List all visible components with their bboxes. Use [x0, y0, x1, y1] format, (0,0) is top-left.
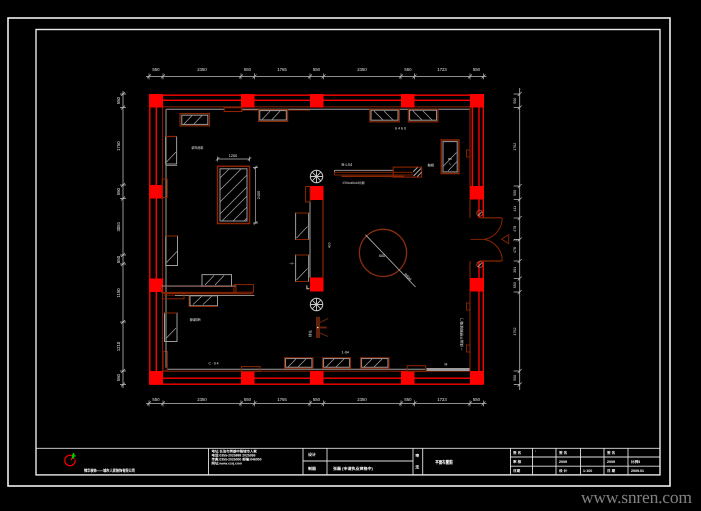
svg-text:签 名: 签 名	[558, 450, 568, 455]
svg-text:入口: 入口	[513, 238, 519, 242]
svg-text:550: 550	[473, 397, 481, 402]
svg-text:C-04: C-04	[209, 361, 219, 365]
svg-text:6460: 6460	[395, 127, 406, 131]
svg-text:1762: 1762	[513, 143, 517, 151]
svg-text:1723: 1723	[437, 397, 447, 402]
svg-text:2350: 2350	[197, 397, 207, 402]
svg-text:网址:www.csrj.com: 网址:www.csrj.com	[212, 462, 243, 466]
svg-text:2009: 2009	[559, 460, 567, 464]
svg-text:411: 411	[513, 206, 517, 212]
svg-text:1200: 1200	[229, 154, 237, 158]
svg-text:玻璃隔断: 玻璃隔断	[190, 318, 201, 322]
svg-text:550: 550	[313, 397, 321, 402]
svg-text:550: 550	[513, 190, 517, 196]
svg-text:550: 550	[404, 67, 412, 72]
svg-text:B-L04: B-L04	[342, 162, 353, 167]
svg-text:1150: 1150	[116, 288, 121, 298]
svg-text:比例$: 比例$	[631, 459, 640, 464]
svg-text:1765: 1765	[277, 397, 287, 402]
svg-text:1210: 1210	[116, 341, 121, 351]
svg-text:3081: 3081	[116, 221, 121, 231]
svg-text:2350: 2350	[197, 67, 207, 72]
svg-text:签 名: 签 名	[606, 450, 616, 455]
svg-text:550: 550	[473, 67, 481, 72]
svg-text:平面布置图: 平面布置图	[435, 459, 453, 466]
svg-text:绿化: 绿化	[309, 330, 313, 337]
svg-text:600: 600	[379, 254, 385, 258]
svg-text:1-04: 1-04	[342, 350, 350, 354]
svg-text:550: 550	[116, 374, 121, 382]
svg-text:2400: 2400	[257, 191, 261, 199]
svg-text:1723: 1723	[437, 67, 447, 72]
svg-text:2009.01: 2009.01	[631, 469, 644, 473]
svg-text:1765: 1765	[277, 67, 287, 72]
svg-text:478: 478	[513, 226, 517, 232]
svg-text:─ 成品不锈钢玻璃门: ─ 成品不锈钢玻璃门	[459, 318, 464, 352]
svg-text:鞋柜: 鞋柜	[428, 164, 435, 168]
svg-text:日期: 日期	[513, 468, 521, 473]
svg-text:550: 550	[313, 67, 321, 72]
svg-text:650: 650	[116, 255, 121, 263]
svg-text:⊣⊢: ⊣⊢	[289, 262, 295, 266]
svg-text:定: 定	[414, 465, 419, 470]
svg-text:550: 550	[116, 97, 121, 105]
svg-text:制图: 制图	[308, 466, 316, 471]
svg-text:2350: 2350	[357, 397, 367, 402]
svg-text:装饰品柜: 装饰品柜	[191, 146, 204, 150]
svg-text:设计: 设计	[308, 452, 316, 457]
svg-text:550: 550	[244, 397, 252, 402]
svg-text:550: 550	[244, 67, 252, 72]
svg-text:550: 550	[116, 188, 121, 196]
svg-text:550: 550	[513, 98, 517, 104]
svg-text:审 核: 审 核	[513, 459, 522, 464]
svg-text:审: 审	[415, 453, 419, 458]
svg-text:日 期: 日 期	[607, 468, 616, 473]
svg-text:R5: R5	[448, 157, 452, 161]
svg-text:391: 391	[513, 267, 517, 273]
svg-text:锦华装饰——城市人家装饰有限公司: 锦华装饰——城市人家装饰有限公司	[84, 468, 135, 473]
svg-text:550: 550	[513, 282, 517, 288]
svg-text:550: 550	[152, 397, 160, 402]
svg-text:设 计: 设 计	[559, 468, 568, 473]
svg-text:478: 478	[513, 247, 517, 253]
svg-text:M: M	[445, 362, 448, 366]
svg-text:550: 550	[513, 375, 517, 381]
svg-text:1:100: 1:100	[583, 469, 592, 473]
svg-text:2009: 2009	[607, 460, 615, 464]
svg-text:张磊 (申请执业资格中): 张磊 (申请执业资格中)	[333, 466, 373, 471]
svg-text:400: 400	[328, 242, 332, 248]
svg-text:1762: 1762	[513, 328, 517, 336]
svg-text:签 名: 签 名	[512, 450, 522, 455]
svg-text:2700x400x18台面: 2700x400x18台面	[343, 181, 366, 185]
svg-text:www.snren.com: www.snren.com	[581, 487, 692, 507]
svg-text:2350: 2350	[357, 67, 367, 72]
svg-text:550: 550	[152, 67, 160, 72]
svg-text:550: 550	[404, 397, 412, 402]
svg-text:1750: 1750	[116, 141, 121, 151]
